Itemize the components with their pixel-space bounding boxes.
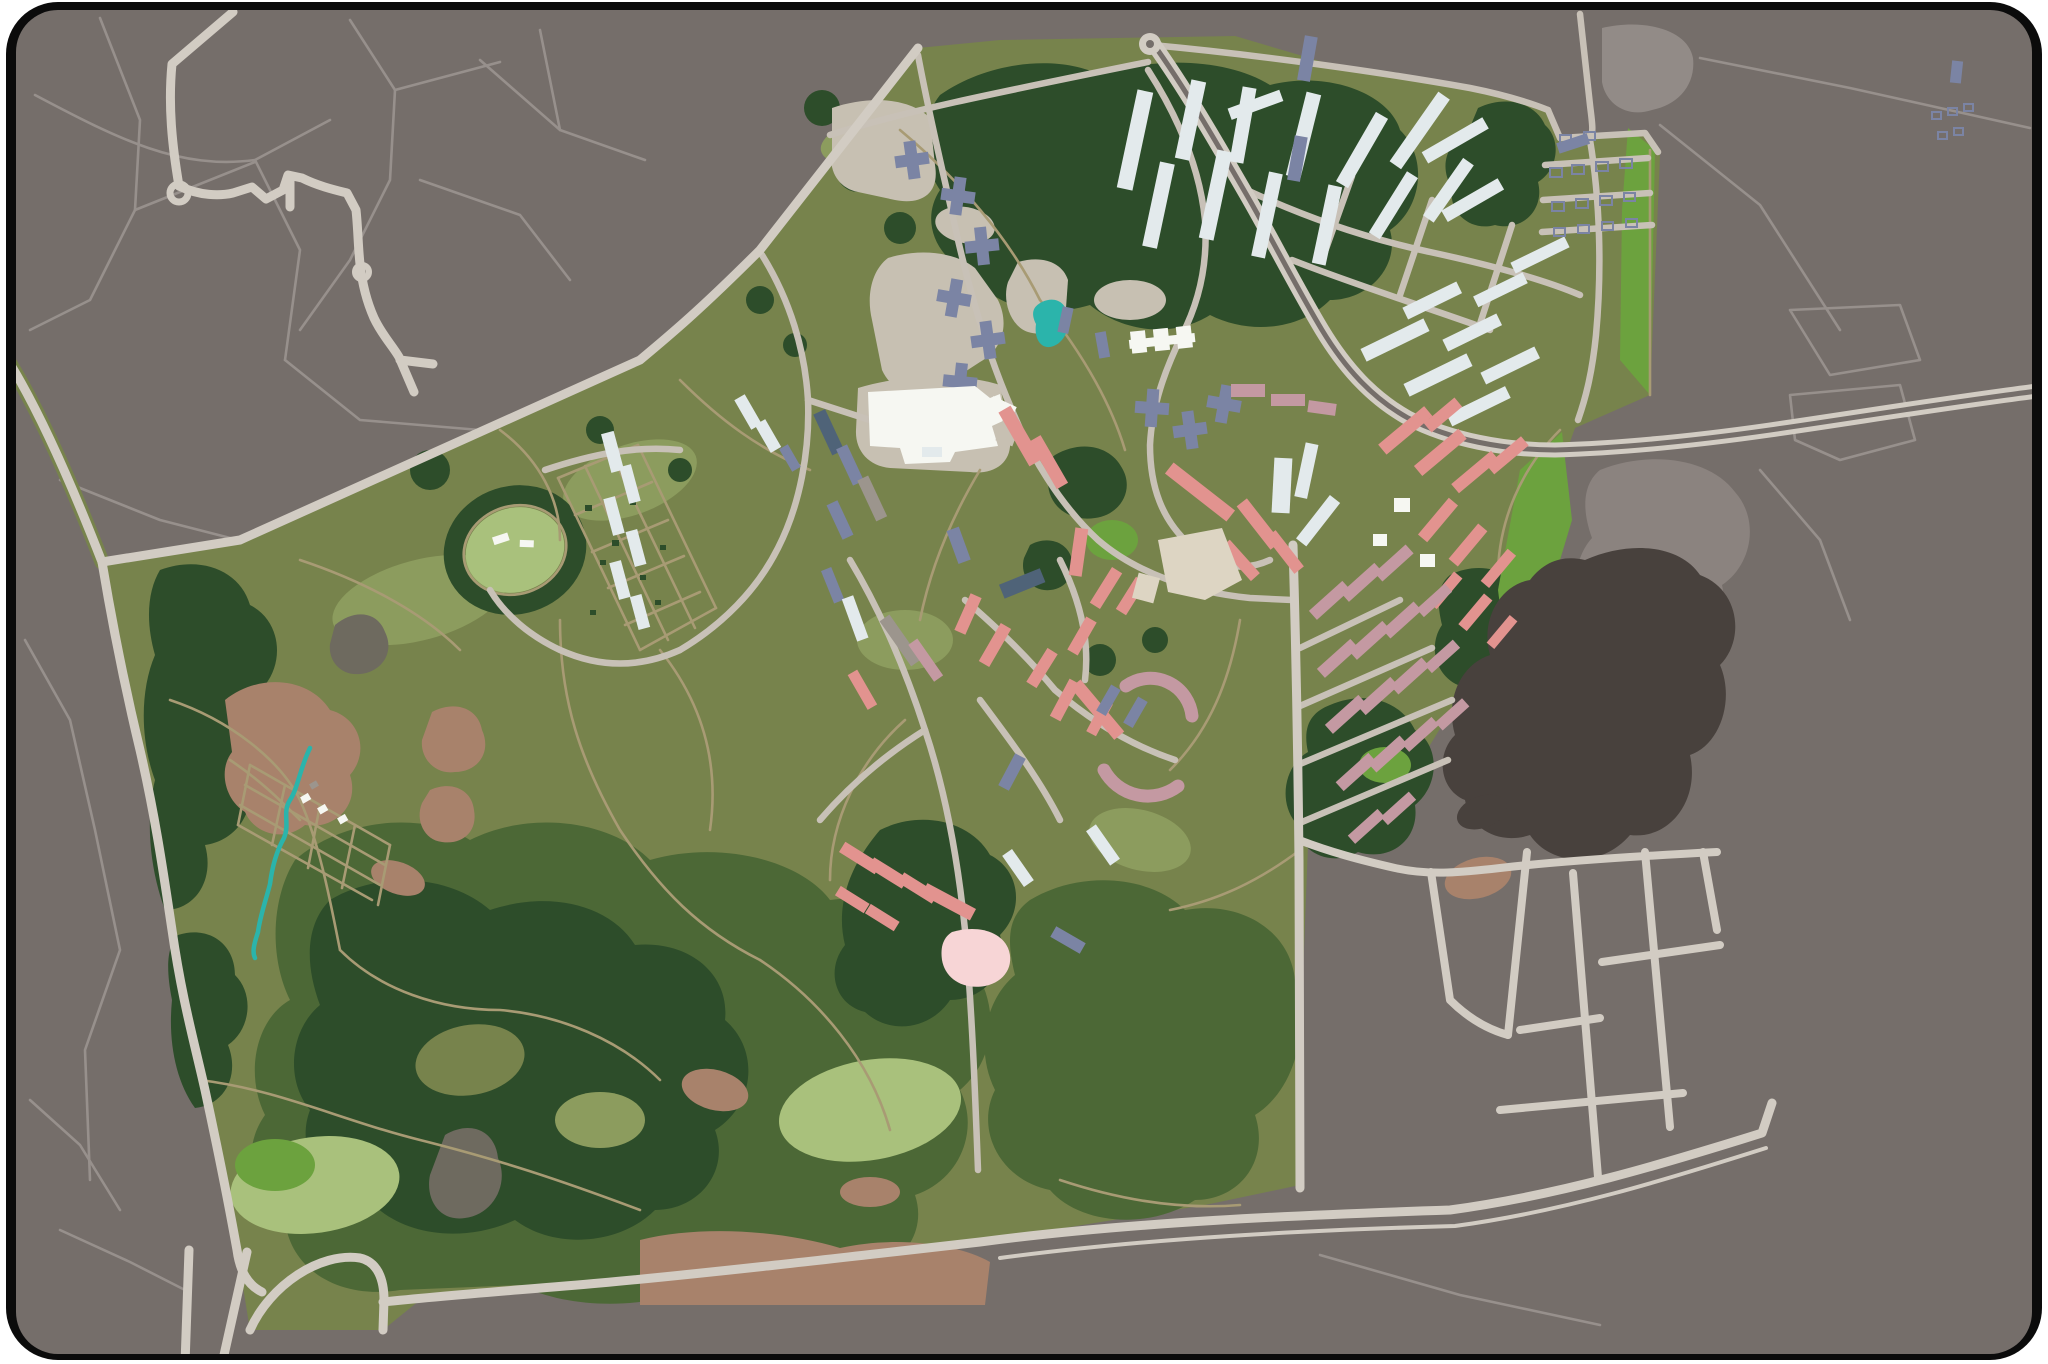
illustrated-map <box>0 0 2048 1364</box>
map-canvas[interactable] <box>0 0 2048 1364</box>
